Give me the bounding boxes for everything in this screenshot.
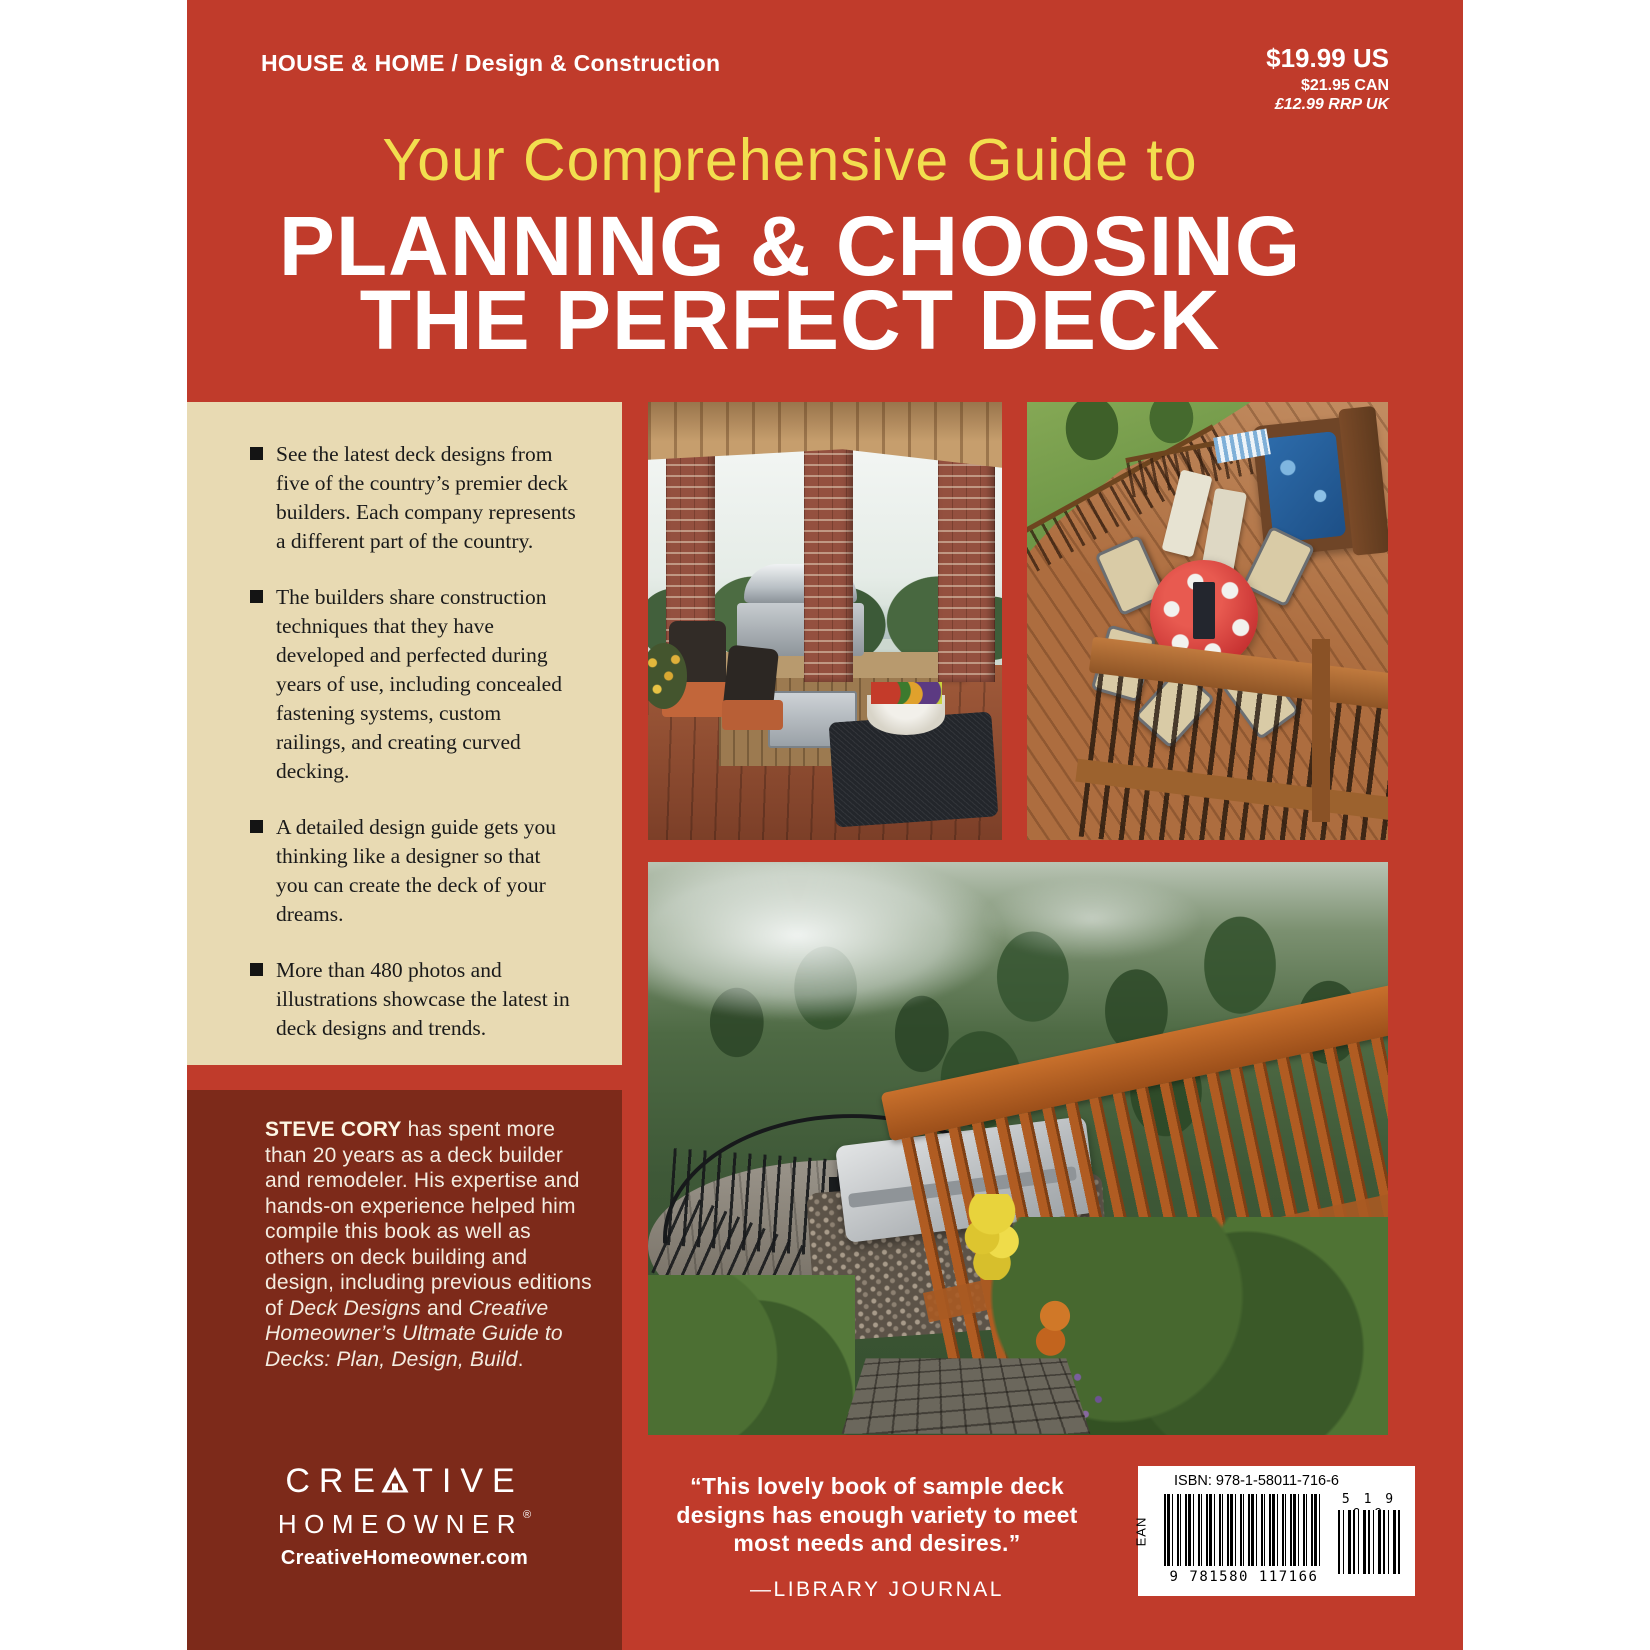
- chair-cushion: [722, 700, 782, 731]
- bullet-square-icon: [250, 590, 263, 603]
- bio-text: and: [421, 1297, 469, 1320]
- quote-text: “This lovely book of sample deck designs…: [672, 1472, 1082, 1558]
- feature-item: A detailed design guide gets you thinkin…: [250, 813, 594, 929]
- review-quote: “This lovely book of sample deck designs…: [672, 1472, 1082, 1602]
- bullet-square-icon: [250, 820, 263, 833]
- barcode-block: ISBN: 978-1-58011-716-6 EAN 9 781580 117…: [1138, 1466, 1415, 1596]
- price-uk: £12.99 RRP UK: [1266, 96, 1389, 114]
- photo-hot-tub-overlook: [648, 862, 1388, 1435]
- logo-text: HOMEOWNER: [278, 1509, 523, 1539]
- bullet-square-icon: [250, 447, 263, 460]
- price-block: $19.99 US $21.95 CAN £12.99 RRP UK: [1266, 44, 1389, 115]
- ean-label: EAN: [1133, 1517, 1148, 1547]
- author-bio: STEVE CORY has spent more than 20 years …: [265, 1117, 595, 1372]
- house-a-icon: [380, 1467, 410, 1494]
- category-label: HOUSE & HOME / Design & Construction: [261, 50, 720, 77]
- quote-attribution: —LIBRARY JOURNAL: [672, 1578, 1082, 1602]
- feature-text: See the latest deck designs from five of…: [276, 440, 576, 556]
- book-back-cover-page: HOUSE & HOME / Design & Construction $19…: [0, 0, 1650, 1650]
- yellow-flowers: [959, 1194, 1026, 1280]
- bullet-square-icon: [250, 963, 263, 976]
- rail-post: [1312, 639, 1330, 823]
- barcode-digits: 9 781580 117166: [1158, 1566, 1330, 1588]
- feature-text: A detailed design guide gets you thinkin…: [276, 813, 576, 929]
- publisher-logo: CRETIVE HOMEOWNER® CreativeHomeowner.com: [187, 1462, 622, 1570]
- title-block: Your Comprehensive Guide to PLANNING & C…: [187, 126, 1463, 358]
- barcode-supplement-bars: [1338, 1510, 1400, 1574]
- feature-text: The builders share construction techniqu…: [276, 583, 576, 786]
- logo-line-2: HOMEOWNER®: [187, 1509, 622, 1540]
- publisher-url: CreativeHomeowner.com: [187, 1547, 622, 1570]
- title-line-2: THE PERFECT DECK: [187, 284, 1393, 358]
- railing-corner: [1065, 637, 1388, 840]
- author-panel: STEVE CORY has spent more than 20 years …: [187, 1090, 622, 1650]
- feature-item: See the latest deck designs from five of…: [250, 440, 594, 556]
- isbn-label: ISBN: 978-1-58011-716-6: [1174, 1473, 1339, 1489]
- photo-deck-dining: [1027, 402, 1388, 840]
- author-name: STEVE CORY: [265, 1118, 402, 1141]
- fruit: [871, 682, 942, 704]
- title-kicker: Your Comprehensive Guide to: [187, 126, 1393, 194]
- bio-text: has spent more than 20 years as a deck b…: [265, 1118, 592, 1320]
- book-back-cover: HOUSE & HOME / Design & Construction $19…: [187, 0, 1463, 1650]
- feature-text: More than 480 photos and illustrations s…: [276, 956, 576, 1043]
- feature-item: More than 480 photos and illustrations s…: [250, 956, 594, 1043]
- photo-outdoor-kitchen: [648, 402, 1002, 840]
- registered-mark: ®: [523, 1509, 531, 1521]
- price-us: $19.99 US: [1266, 44, 1389, 74]
- table-lantern: [1193, 582, 1215, 639]
- logo-text: CRE: [285, 1462, 384, 1500]
- hot-tub-water: [1263, 431, 1347, 543]
- price-can: $21.95 CAN: [1266, 77, 1389, 95]
- orange-flowers: [1033, 1297, 1077, 1360]
- logo-line-1: CRETIVE: [187, 1462, 622, 1501]
- shrubs: [648, 1275, 855, 1435]
- fog: [944, 873, 1240, 965]
- brick-column: [804, 420, 854, 683]
- slate-path: [842, 1358, 1091, 1433]
- bio-book-title: Deck Designs: [289, 1297, 421, 1320]
- features-panel: See the latest deck designs from five of…: [187, 402, 622, 1065]
- bio-text: .: [518, 1348, 524, 1371]
- barcode-bars: [1164, 1494, 1324, 1574]
- feature-item: The builders share construction techniqu…: [250, 583, 594, 786]
- logo-text: TIVE: [412, 1462, 524, 1500]
